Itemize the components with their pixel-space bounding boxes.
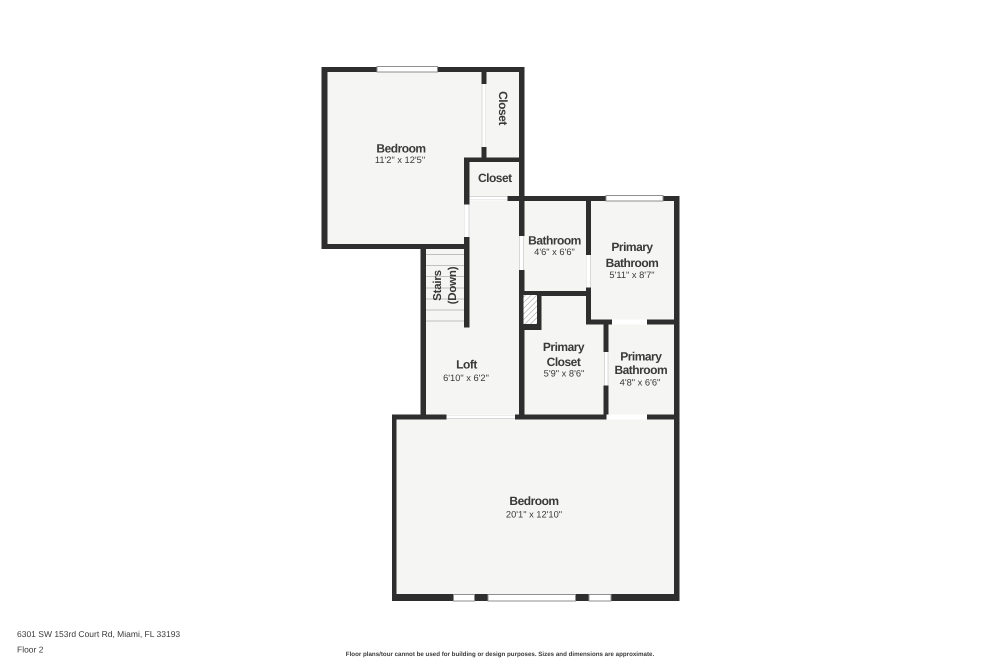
svg-text:Bedroom: Bedroom	[376, 142, 425, 156]
svg-text:4'6" x 6'6": 4'6" x 6'6"	[534, 247, 575, 257]
svg-text:Closet: Closet	[496, 91, 510, 125]
svg-text:11'2" x 12'5": 11'2" x 12'5"	[375, 155, 425, 165]
svg-text:5'11" x 8'7": 5'11" x 8'7"	[609, 270, 654, 280]
svg-text:Bathroom: Bathroom	[614, 363, 667, 377]
svg-text:4'8" x 6'6": 4'8" x 6'6"	[620, 378, 661, 388]
svg-text:Primary: Primary	[611, 240, 653, 254]
svg-text:Closet: Closet	[547, 355, 581, 369]
svg-text:(Down): (Down)	[447, 266, 459, 304]
svg-text:Bathroom: Bathroom	[528, 233, 581, 247]
svg-text:Stairs: Stairs	[432, 270, 444, 301]
svg-text:Primary: Primary	[620, 350, 662, 364]
svg-text:Primary: Primary	[543, 340, 585, 354]
svg-text:Bedroom: Bedroom	[509, 494, 558, 508]
svg-text:5'9" x 8'6": 5'9" x 8'6"	[544, 368, 585, 378]
svg-text:Closet: Closet	[478, 171, 512, 185]
svg-text:6301 SW 153rd Court Rd, Miami,: 6301 SW 153rd Court Rd, Miami, FL 33193	[17, 629, 180, 639]
svg-text:20'1" x 12'10": 20'1" x 12'10"	[506, 509, 562, 519]
svg-text:Floor 2: Floor 2	[17, 644, 44, 654]
svg-text:Bathroom: Bathroom	[606, 256, 659, 270]
svg-text:6'10" x 6'2": 6'10" x 6'2"	[443, 373, 489, 383]
svg-text:Floor plans/tour cannot be use: Floor plans/tour cannot be used for buil…	[346, 651, 655, 658]
svg-text:Loft: Loft	[456, 357, 477, 371]
